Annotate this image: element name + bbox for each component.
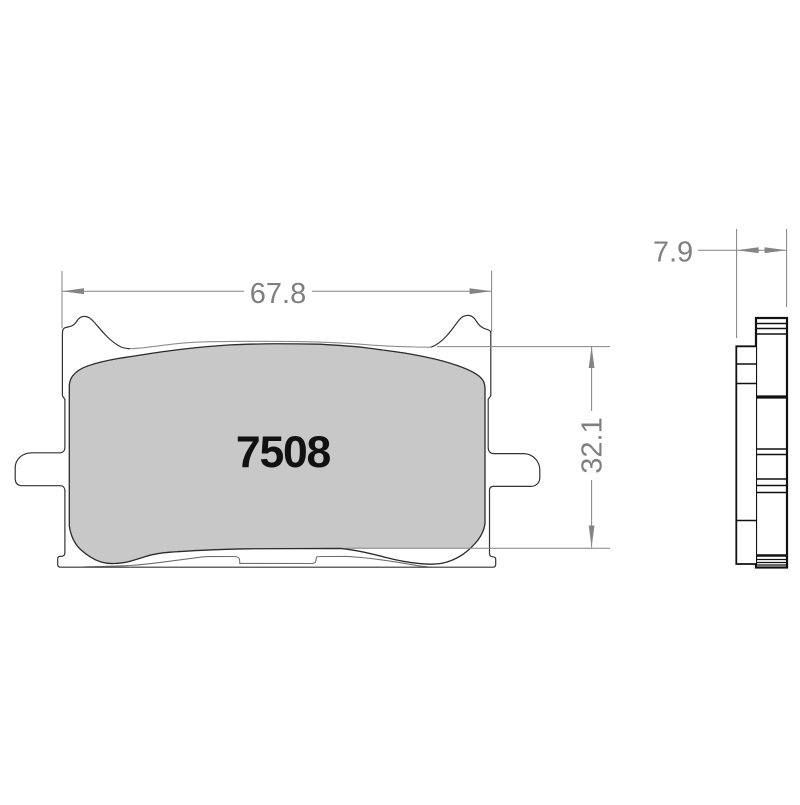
svg-text:32.1: 32.1 [577, 417, 609, 473]
svg-text:7.9: 7.9 [653, 237, 693, 269]
svg-text:7508: 7508 [236, 428, 331, 477]
svg-text:67.8: 67.8 [250, 278, 306, 310]
